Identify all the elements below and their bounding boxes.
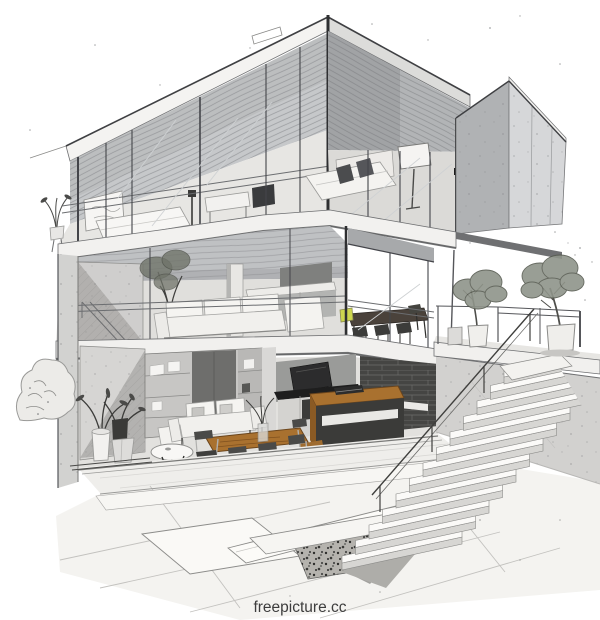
shear-wall-middle: [78, 262, 143, 343]
books: [150, 364, 164, 376]
pot-shadow: [540, 350, 580, 357]
tree-pot-large: [547, 324, 575, 352]
cube-pot: [448, 327, 462, 345]
throw-pillow-2: [220, 404, 232, 414]
tree-pot-small: [468, 325, 488, 347]
white-cylinder-pot: [92, 429, 110, 462]
house-sketch: Monochrome pencil-style cutaway illustra…: [0, 0, 600, 620]
sketch-canvas: Monochrome pencil-style cutaway illustra…: [0, 0, 600, 620]
watermark-text: freepicture.cc: [253, 599, 346, 616]
tv-panel: [252, 184, 275, 208]
faceted-pot: [112, 438, 134, 463]
